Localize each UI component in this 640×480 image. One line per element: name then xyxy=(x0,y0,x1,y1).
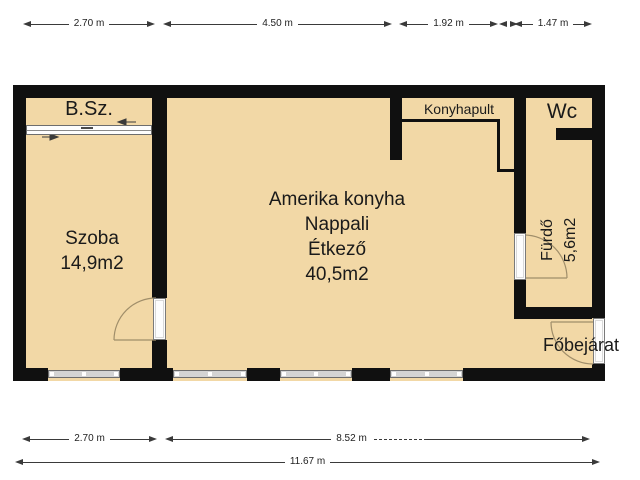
szoba-name: Szoba xyxy=(32,226,152,251)
living-line-1: Amerika konyha xyxy=(217,187,457,212)
room-label-furdo: Fürdő 5,6m2 xyxy=(536,190,582,290)
furdo-name: Fürdő xyxy=(536,190,559,290)
szoba-door-frame xyxy=(153,298,166,340)
floor-plan: 2.70 m 4.50 m 1.92 m 1.47 m xyxy=(0,0,640,480)
room-label-living: Amerika konyha Nappali Étkező 40,5m2 xyxy=(217,187,457,287)
furdo-area: 5,6m2 xyxy=(559,190,582,290)
room-label-entrance: Főbejárat xyxy=(543,335,619,356)
szoba-area: 14,9m2 xyxy=(32,251,152,276)
living-area: 40,5m2 xyxy=(217,262,457,287)
room-label-konyhapult: Konyhapult xyxy=(407,101,511,117)
room-label-bsz: B.Sz. xyxy=(39,97,139,122)
wardrobe-sliding-door xyxy=(26,125,152,135)
living-line-3: Étkező xyxy=(217,237,457,262)
sliding-door-handle xyxy=(81,127,93,129)
room-label-wc: Wc xyxy=(532,100,592,124)
szoba-door-arc xyxy=(114,298,156,340)
bath-door-frame xyxy=(514,233,526,280)
room-label-szoba: Szoba 14,9m2 xyxy=(32,226,152,276)
living-line-2: Nappali xyxy=(217,212,457,237)
